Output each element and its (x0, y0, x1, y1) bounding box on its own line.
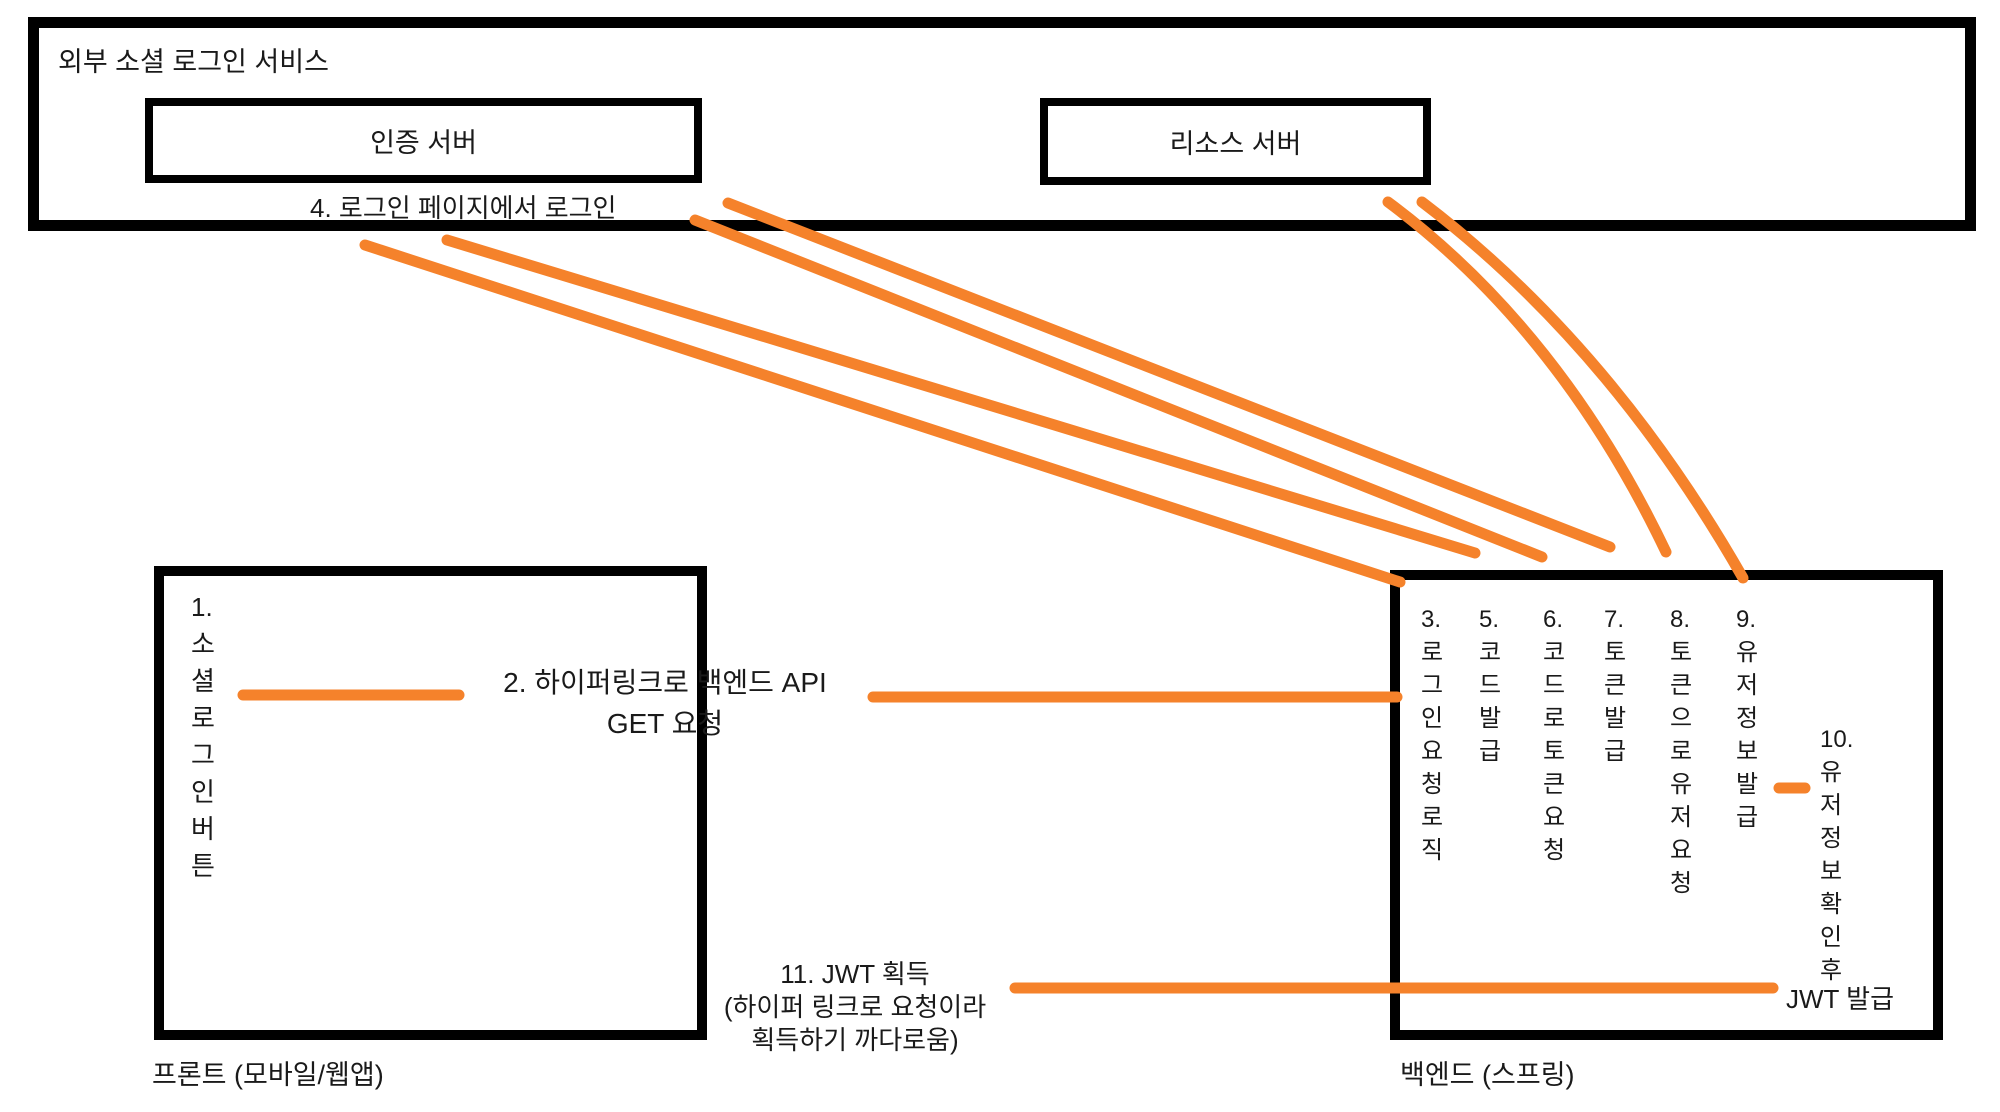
backend-step3-column: 3. 로 그 인 요 청 로 직 (1421, 603, 1443, 867)
auth-server-label: 인증 서버 (370, 121, 477, 160)
backend-step9-column: 9. 유 저 정 보 발 급 (1736, 603, 1758, 834)
resource-server-label: 리소스 서버 (1170, 122, 1302, 161)
code-issue-to-backend-line (447, 240, 1475, 553)
step11-jwt-acquire-label: 11. JWT 획득 (하이퍼 링크로 요청이라 획득하기 까다로움) (690, 958, 1020, 1057)
backend-step6-column: 6. 코 드 로 토 큰 요 청 (1543, 603, 1565, 867)
resource-server-box: 리소스 서버 (1040, 98, 1431, 185)
frontend-box-label: 프론트 (모바일/웹앱) (152, 1053, 384, 1092)
token-request-to-auth-line (695, 220, 1542, 557)
jwt-issue-label: JWT 발급 (1786, 979, 1894, 1016)
step2-hyperlink-get-label: 2. 하이퍼링크로 백엔드 API GET 요청 (440, 662, 890, 744)
step4-login-page-label: 4. 로그인 페이지에서 로그인 (310, 188, 616, 225)
userinfo-issue-to-backend-line (1422, 202, 1743, 578)
backend-step10-column: 10. 유 저 정 보 확 인 후 (1820, 723, 1853, 987)
backend-box-label: 백엔드 (스프링) (1400, 1053, 1575, 1092)
backend-step8-column: 8. 토 큰 으 로 유 저 요 청 (1670, 603, 1692, 900)
external-service-label: 외부 소셜 로그인 서비스 (58, 40, 329, 79)
login-request-to-auth-line (365, 245, 1400, 582)
social-login-button-label: 1. 소 셜 로 그 인 버 튼 (191, 589, 215, 885)
backend-box (1390, 570, 1943, 1040)
user-request-to-resource-line (1388, 202, 1666, 552)
token-issue-to-backend-line (728, 203, 1610, 547)
backend-step5-column: 5. 코 드 발 급 (1479, 603, 1501, 768)
frontend-box (154, 566, 707, 1040)
backend-step7-column: 7. 토 큰 발 급 (1604, 603, 1626, 768)
auth-server-box: 인증 서버 (145, 98, 702, 183)
